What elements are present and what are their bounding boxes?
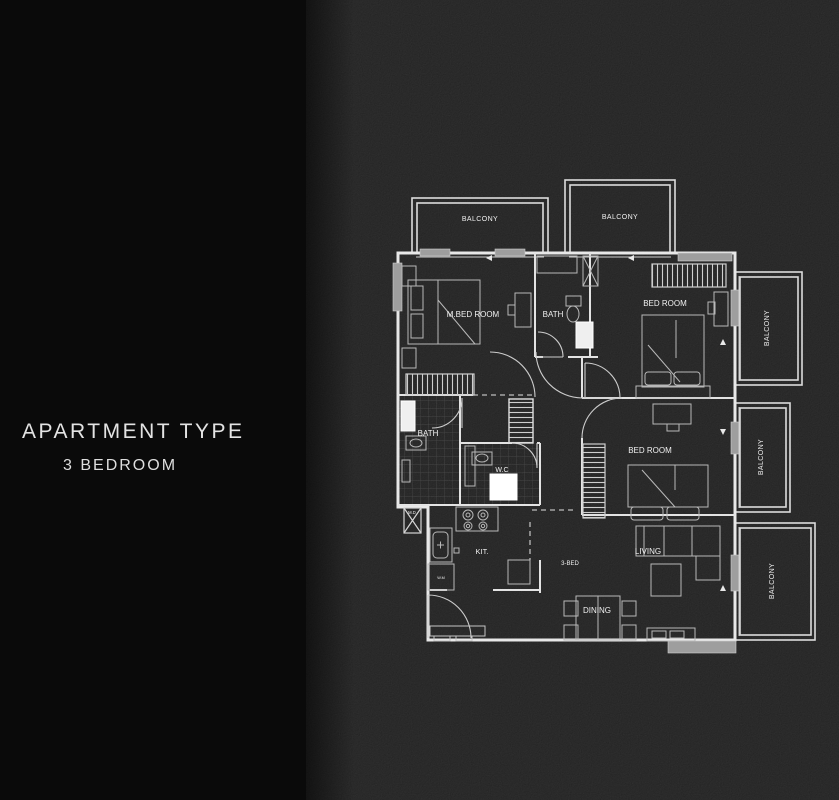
wc-label: W.C [495,467,508,474]
balcony-right-top-label: BALCONY [764,310,771,346]
meter-duct-label: M.D [408,510,416,515]
master-bedroom-label: M.BED ROOM [447,310,500,319]
bedroom-count-subtitle: 3 BEDROOM [63,457,177,475]
title-panel: APARTMENT TYPE 3 BEDROOM [0,0,306,800]
living-furniture [636,526,720,641]
balcony-right-bottom-label: BALCONY [769,563,776,599]
linen-shelf [509,399,533,443]
master-wardrobe [406,374,474,395]
panel-edge-shadow [306,0,354,800]
bath-label: BATH [418,429,439,438]
bedroom-middle-wardrobe [583,444,605,518]
bedroom-top-wardrobe [652,264,726,287]
balcony-top-left [412,198,548,253]
bedroom-top-label: BED ROOM [643,299,687,308]
floorplan-svg: BALCONY BALCONY BALCONY BALCONY BALCONY … [380,160,839,670]
balcony-right-middle-label: BALCONY [758,439,765,475]
kitchen-label: KIT. [476,547,489,556]
master-bath-label: BATH [543,310,564,319]
balcony-top-left-label: BALCONY [462,216,498,223]
dining-label: DINING [583,606,611,615]
bedroom-middle-furniture [628,404,708,520]
living-label: LIVING [635,547,661,556]
balcony-top-right-label: BALCONY [602,214,638,221]
master-bath-fixtures [537,256,598,348]
unit-type-label: 3-BED [561,561,579,567]
washing-machine-label: W.M [437,576,445,580]
dining-furniture [564,596,636,640]
bedroom-middle-label: BED ROOM [628,446,672,455]
apartment-type-title: APARTMENT TYPE [22,420,245,444]
page: APARTMENT TYPE 3 BEDROOM [0,0,839,800]
